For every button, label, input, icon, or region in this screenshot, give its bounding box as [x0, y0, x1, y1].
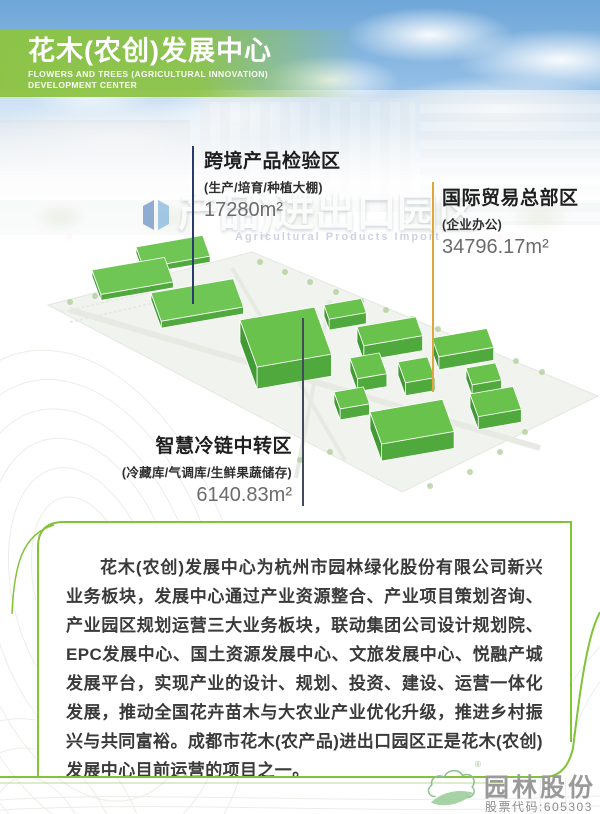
stock-code: 股票代码:605303	[485, 798, 593, 814]
zone-area: 17280m²	[204, 199, 341, 222]
zone-area: 34796.17m²	[442, 236, 579, 259]
zone-area: 6140.83m²	[58, 484, 292, 507]
poster-page: 产品)进出口园区 Agricultural Products Import 花木…	[0, 0, 600, 814]
zone-title: 国际贸易总部区	[442, 183, 579, 210]
zone-title: 跨境产品检验区	[204, 146, 341, 173]
leader-line-coldchain	[302, 318, 304, 506]
zone-label-inspection: 跨境产品检验区 (生产/培育/种植大棚) 17280m²	[204, 146, 341, 222]
zone-title: 智慧冷链中转区	[58, 431, 292, 458]
zone-subtitle: (冷藏库/气调库/生鲜果蔬储存)	[58, 462, 292, 481]
zone-subtitle: (企业办公)	[442, 214, 579, 233]
leader-line-inspection	[192, 146, 194, 304]
zone-label-trade: 国际贸易总部区 (企业办公) 34796.17m²	[442, 183, 579, 259]
description-text: 花木(农创)发展中心为杭州市园林绿化股份有限公司新兴业务板块，发展中心通过产业资…	[66, 553, 543, 785]
leader-line-trade	[432, 182, 434, 392]
cloud-leaf-logo-icon	[422, 764, 480, 812]
zone-label-coldchain: 智慧冷链中转区 (冷藏库/气调库/生鲜果蔬储存) 6140.83m²	[58, 431, 292, 507]
zone-subtitle: (生产/培育/种植大棚)	[204, 177, 341, 196]
description-card: 花木(农创)发展中心为杭州市园林绿化股份有限公司新兴业务板块，发展中心通过产业资…	[36, 521, 573, 777]
company-logo: ® 园林股份 股票代码:605303	[422, 758, 600, 814]
registered-mark: ®	[475, 760, 481, 769]
